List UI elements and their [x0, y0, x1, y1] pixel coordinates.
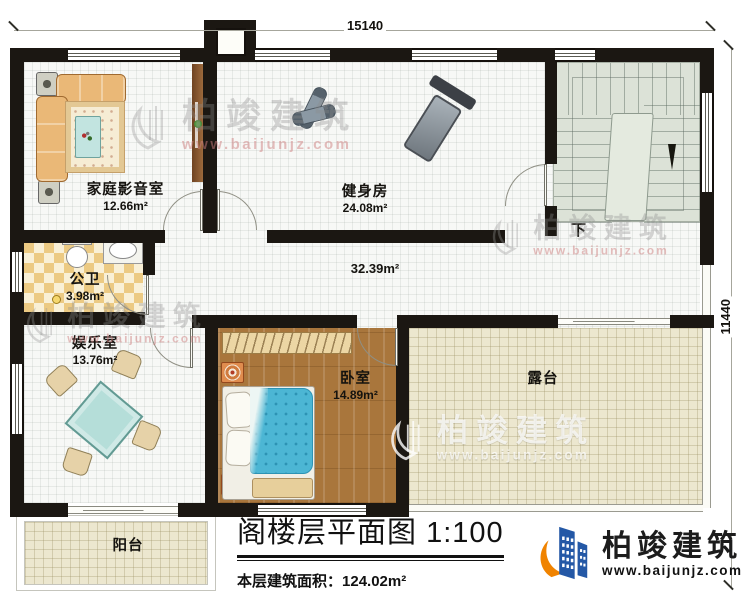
dumbbells — [290, 86, 338, 132]
wall-segment — [670, 315, 714, 328]
plan-title: 阁楼层平面图 1:100 — [237, 509, 504, 551]
dimension-tick — [723, 40, 734, 51]
room-area: 14.89m² — [308, 388, 403, 402]
wall-segment — [545, 206, 557, 236]
door-leaf — [544, 164, 547, 206]
door-leaf — [190, 328, 193, 368]
stairs-down-label: 下 — [564, 222, 594, 240]
room-name: 露台 — [503, 371, 583, 388]
window — [412, 48, 497, 62]
wall-segment — [10, 48, 24, 252]
room-label-terrace: 露台 — [503, 371, 583, 388]
stair-landing-panel — [604, 113, 654, 221]
room-label-bathroom: 公卫 3.98m² — [45, 272, 125, 304]
flowers — [80, 130, 94, 144]
stairs-down-text: 下 — [564, 222, 594, 240]
wall-segment — [143, 235, 155, 275]
dimension-right-label: 11440 — [718, 296, 733, 337]
company-logo: 柏竣建筑 www.baijunjz.com — [536, 521, 743, 588]
wall-segment — [10, 230, 165, 243]
wall-segment — [397, 315, 558, 328]
shaft-window — [216, 28, 246, 56]
plant — [194, 120, 202, 128]
door-leaf — [200, 189, 203, 231]
door-leaf — [395, 328, 398, 366]
plan-scale: 1:100 — [426, 517, 504, 549]
room-name: 娱乐室 — [45, 336, 145, 353]
room-name: 健身房 — [305, 184, 425, 201]
title-underline — [237, 555, 504, 558]
floor-area-label: 本层建筑面积： — [237, 573, 342, 590]
room-label-bedroom: 卧室 14.89m² — [308, 371, 403, 403]
bed-bench — [252, 478, 313, 498]
room-area: 24.08m² — [305, 201, 425, 215]
room-name: 卧室 — [308, 371, 403, 388]
quilt-fold — [250, 388, 268, 474]
logo-url: www.baijunjz.com — [602, 563, 743, 578]
wall-segment — [595, 48, 714, 62]
toilet — [66, 246, 88, 268]
wall-segment — [205, 315, 218, 505]
window — [255, 48, 330, 62]
staircase — [553, 62, 700, 222]
wall-segment — [330, 48, 412, 62]
room-area: 3.98m² — [45, 289, 125, 303]
room-name: 阳台 — [88, 538, 168, 555]
baijun-logo-icon — [536, 521, 594, 588]
room-area: 12.66m² — [58, 199, 193, 213]
wall-segment — [267, 230, 505, 243]
room-label-gym: 健身房 24.08m² — [305, 184, 425, 216]
door-leaf — [217, 189, 220, 231]
title-underline-thin — [237, 560, 504, 561]
title-block: 阁楼层平面图 1:100 本层建筑面积：124.02m² — [237, 509, 504, 591]
nightstand — [221, 362, 244, 383]
terrace-floor — [409, 328, 702, 504]
room-area: 32.39m² — [325, 261, 425, 277]
wardrobe — [222, 332, 352, 354]
window — [68, 48, 180, 62]
wall-segment — [10, 503, 68, 517]
terrace-sliding-door — [558, 318, 670, 325]
wall-segment — [10, 312, 145, 325]
terrace-railing-right — [702, 265, 711, 508]
plan-title-text: 阁楼层平面图 — [237, 517, 417, 549]
floor-area-value: 124.02m² — [342, 573, 406, 590]
speaker — [36, 72, 58, 96]
room-name: 公卫 — [45, 272, 125, 289]
door-leaf — [146, 275, 149, 315]
wall-segment — [545, 62, 557, 164]
wall-segment — [700, 48, 714, 93]
wall-segment — [497, 48, 555, 62]
sofa — [36, 96, 68, 182]
balcony-sliding-door — [68, 506, 178, 514]
wall-segment — [10, 292, 24, 364]
room-area: 13.76m² — [45, 353, 145, 367]
window — [10, 252, 24, 292]
room-label-home-theater: 家庭影音室 12.66m² — [58, 182, 193, 214]
room-label-entertainment: 娱乐室 13.76m² — [45, 336, 145, 368]
floor-area-line: 本层建筑面积：124.02m² — [237, 570, 504, 591]
room-name: 家庭影音室 — [58, 182, 193, 199]
floorplan-canvas: 家庭影音室 12.66m² 健身房 24.08m² 公卫 3.98m² 32.3… — [0, 0, 750, 601]
window — [700, 93, 714, 192]
window — [10, 364, 24, 434]
pillow — [225, 391, 253, 429]
window — [555, 48, 595, 62]
sink — [109, 241, 137, 259]
stairs-down-arrow-icon — [668, 144, 676, 170]
wall-segment — [203, 48, 217, 233]
speaker — [38, 180, 60, 204]
logo-name: 柏竣建筑 — [602, 531, 743, 563]
room-label-hall: 32.39m² — [325, 261, 425, 277]
wall-segment — [700, 192, 714, 265]
dimension-top-label: 15140 — [344, 18, 386, 33]
room-label-balcony: 阳台 — [88, 538, 168, 555]
pillow — [225, 429, 253, 466]
